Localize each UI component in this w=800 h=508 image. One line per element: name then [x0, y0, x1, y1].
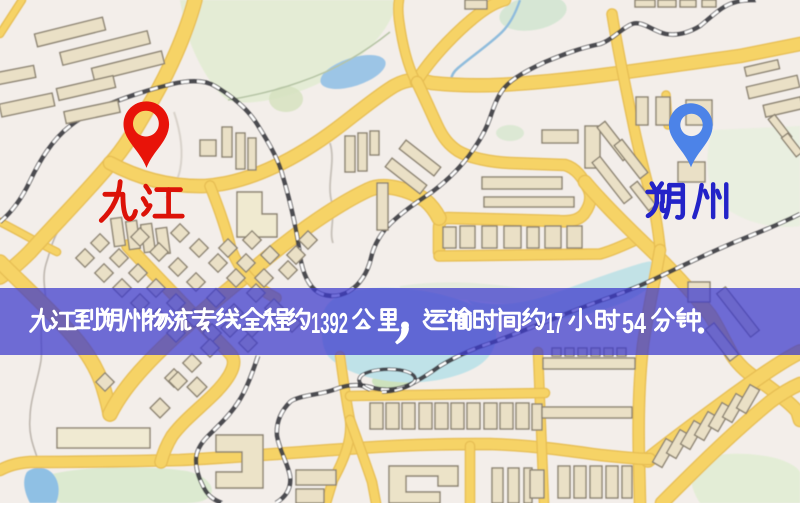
svg-text:1392: 1392: [311, 308, 348, 340]
svg-text:54: 54: [622, 308, 646, 340]
svg-text:17: 17: [546, 308, 563, 340]
